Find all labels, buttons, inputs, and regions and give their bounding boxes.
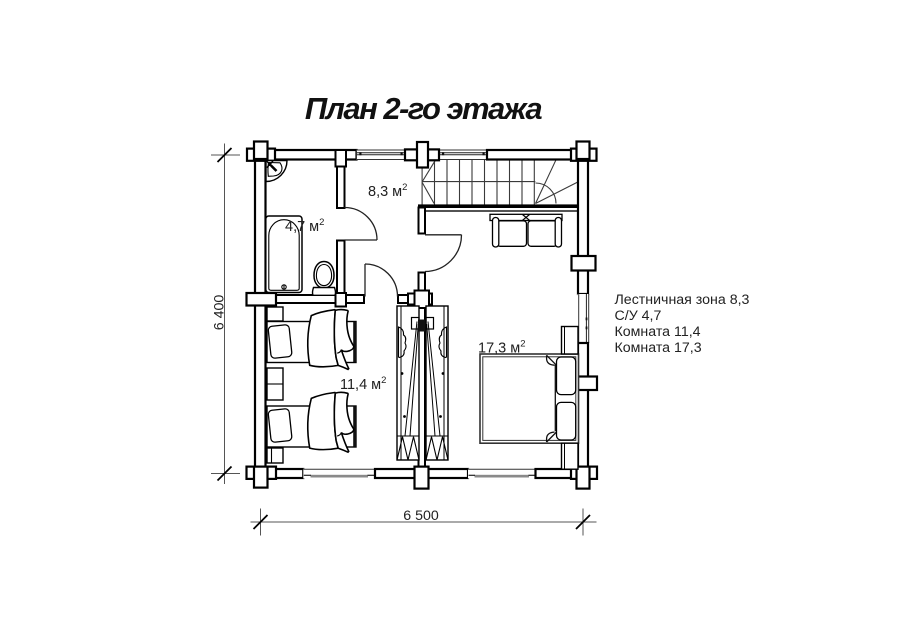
svg-text:11,4 м2: 11,4 м2 [340, 375, 386, 393]
svg-text:4,7 м2: 4,7 м2 [285, 217, 324, 235]
svg-text:Лестничная зона 8,3: Лестничная зона 8,3 [615, 292, 750, 308]
svg-text:6 400: 6 400 [211, 295, 227, 331]
svg-text:6 500: 6 500 [403, 508, 439, 524]
svg-text:С/У 4,7: С/У 4,7 [615, 308, 662, 324]
svg-text:План 2-го этажа: План 2-го этажа [305, 91, 542, 126]
svg-text:Комната 11,4: Комната 11,4 [615, 324, 701, 340]
svg-text:Комната 17,3: Комната 17,3 [615, 340, 702, 356]
svg-text:8,3 м2: 8,3 м2 [368, 182, 407, 200]
svg-text:17,3 м2: 17,3 м2 [478, 339, 526, 357]
